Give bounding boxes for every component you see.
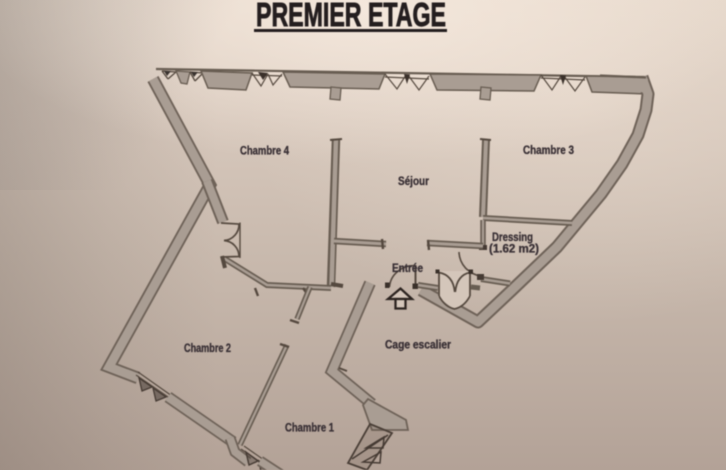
svg-text:Chambre 2: Chambre 2 bbox=[184, 341, 231, 355]
svg-text:PREMIER ETAGE: PREMIER ETAGE bbox=[256, 0, 446, 33]
svg-text:Entrée: Entrée bbox=[392, 263, 423, 275]
svg-text:Dressing: Dressing bbox=[492, 232, 533, 244]
svg-text:Cage escalier: Cage escalier bbox=[385, 338, 451, 352]
svg-text:Chambre 3: Chambre 3 bbox=[523, 143, 574, 157]
svg-text:Chambre 1: Chambre 1 bbox=[285, 421, 334, 435]
svg-text:Chambre 4: Chambre 4 bbox=[240, 144, 289, 158]
svg-text:(1.62 m2): (1.62 m2) bbox=[489, 244, 539, 256]
svg-text:Séjour: Séjour bbox=[398, 174, 429, 188]
